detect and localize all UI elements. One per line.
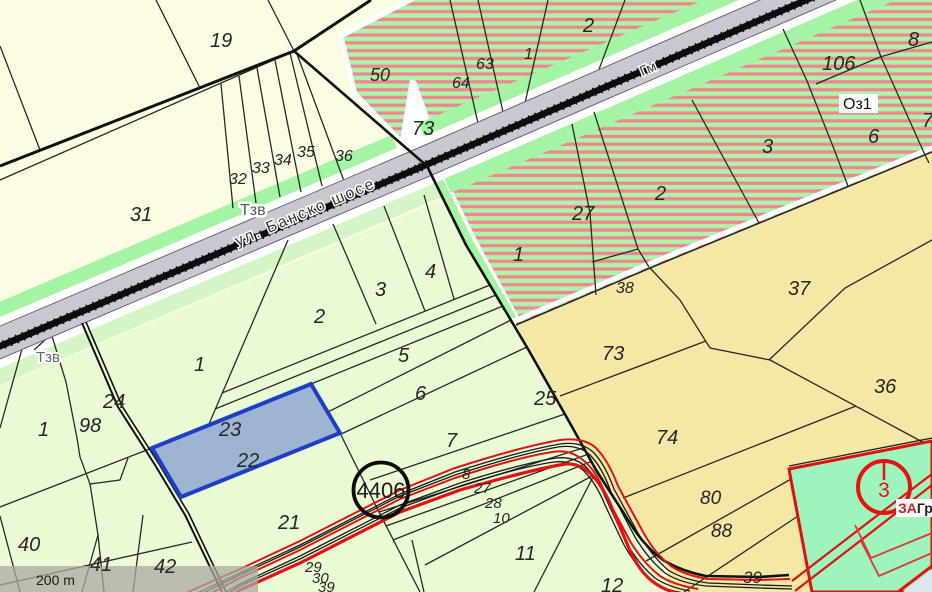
svg-text:39: 39 — [743, 568, 762, 587]
svg-text:2: 2 — [582, 15, 594, 37]
svg-text:Оз1: Оз1 — [843, 96, 872, 113]
svg-text:37: 37 — [788, 278, 811, 300]
svg-text:ЗАГр: ЗАГр — [898, 500, 932, 516]
svg-text:27: 27 — [571, 203, 595, 225]
svg-text:8: 8 — [908, 29, 919, 51]
svg-text:106: 106 — [822, 53, 856, 75]
svg-text:39: 39 — [318, 579, 335, 592]
svg-text:35: 35 — [297, 144, 315, 161]
svg-text:80: 80 — [700, 488, 722, 509]
svg-text:22: 22 — [236, 450, 259, 472]
svg-text:6: 6 — [868, 126, 880, 148]
svg-text:1: 1 — [524, 46, 533, 63]
svg-text:Тзв: Тзв — [36, 349, 60, 366]
svg-text:98: 98 — [79, 415, 101, 437]
svg-text:2: 2 — [654, 183, 666, 205]
svg-text:42: 42 — [154, 556, 176, 578]
svg-text:5: 5 — [398, 345, 410, 367]
svg-text:23: 23 — [218, 419, 241, 441]
svg-text:1: 1 — [194, 354, 205, 376]
svg-text:73: 73 — [602, 343, 624, 365]
svg-text:31: 31 — [130, 204, 152, 226]
svg-text:64: 64 — [452, 75, 470, 92]
svg-text:8: 8 — [462, 466, 471, 483]
svg-text:38: 38 — [616, 280, 634, 297]
svg-text:25: 25 — [533, 388, 557, 410]
svg-text:36: 36 — [335, 148, 353, 165]
svg-text:88: 88 — [711, 521, 733, 542]
svg-text:19: 19 — [210, 30, 232, 52]
svg-text:200 m: 200 m — [36, 572, 75, 588]
svg-text:1: 1 — [38, 419, 49, 441]
svg-text:74: 74 — [656, 427, 678, 449]
svg-text:3: 3 — [762, 136, 773, 158]
svg-text:1: 1 — [513, 244, 524, 266]
svg-text:73: 73 — [412, 118, 434, 140]
svg-text:4406: 4406 — [357, 478, 406, 503]
svg-text:3: 3 — [375, 279, 386, 301]
svg-text:2: 2 — [313, 306, 325, 328]
svg-text:40: 40 — [18, 534, 40, 556]
svg-text:36: 36 — [874, 376, 897, 398]
svg-text:50: 50 — [370, 65, 390, 85]
svg-text:6: 6 — [415, 383, 427, 405]
svg-text:4: 4 — [425, 261, 436, 283]
svg-text:3: 3 — [878, 479, 890, 502]
svg-text:10: 10 — [493, 510, 510, 527]
svg-text:24: 24 — [102, 391, 125, 413]
svg-text:Тзв: Тзв — [240, 202, 266, 219]
svg-text:34: 34 — [274, 152, 292, 169]
svg-text:32: 32 — [229, 171, 247, 188]
svg-text:12: 12 — [601, 575, 623, 592]
svg-text:21: 21 — [277, 512, 300, 534]
svg-text:63: 63 — [476, 56, 494, 73]
svg-text:11: 11 — [515, 543, 536, 565]
svg-text:33: 33 — [252, 160, 270, 177]
svg-text:7: 7 — [922, 110, 932, 132]
svg-text:41: 41 — [90, 554, 112, 576]
svg-text:7: 7 — [446, 430, 458, 452]
